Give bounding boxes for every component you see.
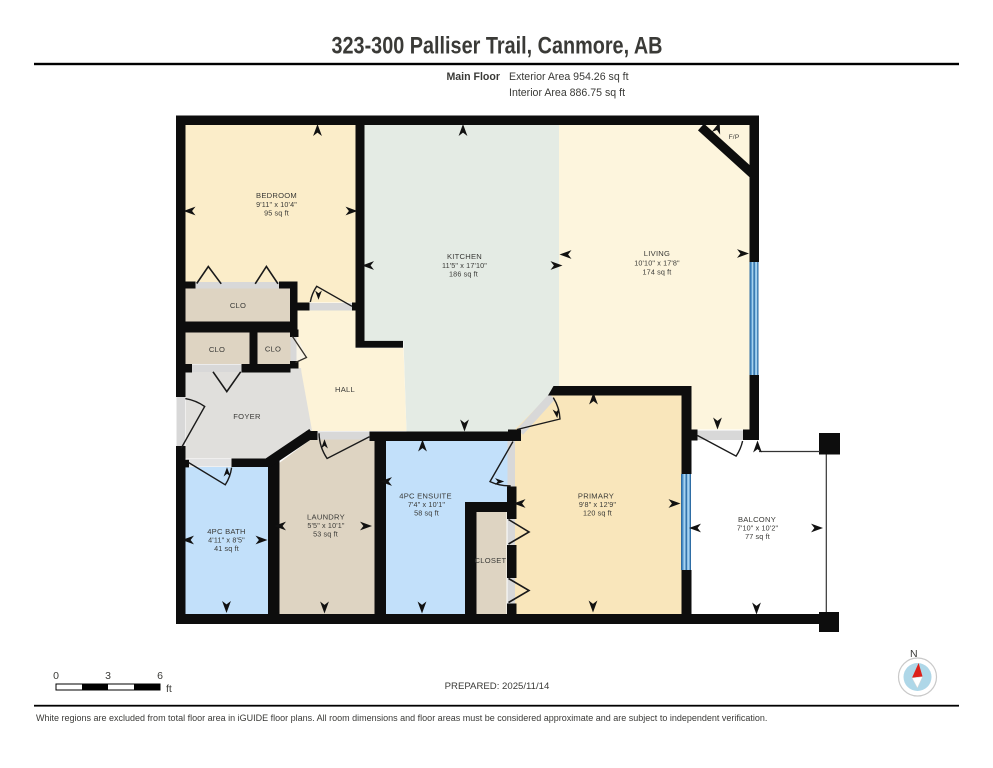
- svg-text:PREPARED: 2025/11/14: PREPARED: 2025/11/14: [445, 681, 550, 692]
- svg-text:10'10" x 17'8": 10'10" x 17'8": [634, 259, 680, 268]
- svg-text:77 sq ft: 77 sq ft: [745, 532, 770, 541]
- svg-text:HALL: HALL: [335, 385, 355, 394]
- svg-text:6: 6: [157, 670, 163, 682]
- svg-text:95 sq ft: 95 sq ft: [264, 209, 289, 218]
- svg-text:CLO: CLO: [209, 345, 225, 354]
- svg-text:CLOSET: CLOSET: [475, 556, 507, 565]
- svg-text:3: 3: [105, 670, 111, 682]
- svg-text:41 sq ft: 41 sq ft: [214, 544, 239, 553]
- svg-text:0: 0: [53, 670, 59, 682]
- svg-text:BEDROOM: BEDROOM: [256, 191, 297, 200]
- svg-text:LIVING: LIVING: [644, 249, 670, 258]
- svg-text:174 sq ft: 174 sq ft: [643, 268, 672, 277]
- svg-text:N: N: [910, 648, 918, 660]
- svg-text:120 sq ft: 120 sq ft: [583, 509, 612, 518]
- svg-text:58 sq ft: 58 sq ft: [414, 509, 439, 518]
- svg-text:Main Floor: Main Floor: [446, 71, 500, 83]
- svg-text:186 sq ft: 186 sq ft: [449, 270, 478, 279]
- svg-text:Exterior Area 954.26 sq ft: Exterior Area 954.26 sq ft: [509, 71, 629, 83]
- svg-text:53 sq ft: 53 sq ft: [313, 530, 338, 539]
- svg-text:KITCHEN: KITCHEN: [447, 252, 482, 261]
- svg-text:ft: ft: [166, 683, 172, 695]
- svg-text:CLO: CLO: [230, 301, 246, 310]
- svg-text:Interior Area 886.75 sq ft: Interior Area 886.75 sq ft: [509, 87, 625, 99]
- svg-text:323-300 Palliser Trail, Canmor: 323-300 Palliser Trail, Canmore, AB: [332, 33, 663, 60]
- svg-text:FOYER: FOYER: [233, 412, 261, 421]
- svg-text:White regions are excluded fro: White regions are excluded from total fl…: [36, 713, 767, 723]
- svg-text:F/P: F/P: [729, 134, 740, 141]
- svg-text:CLO: CLO: [265, 345, 281, 354]
